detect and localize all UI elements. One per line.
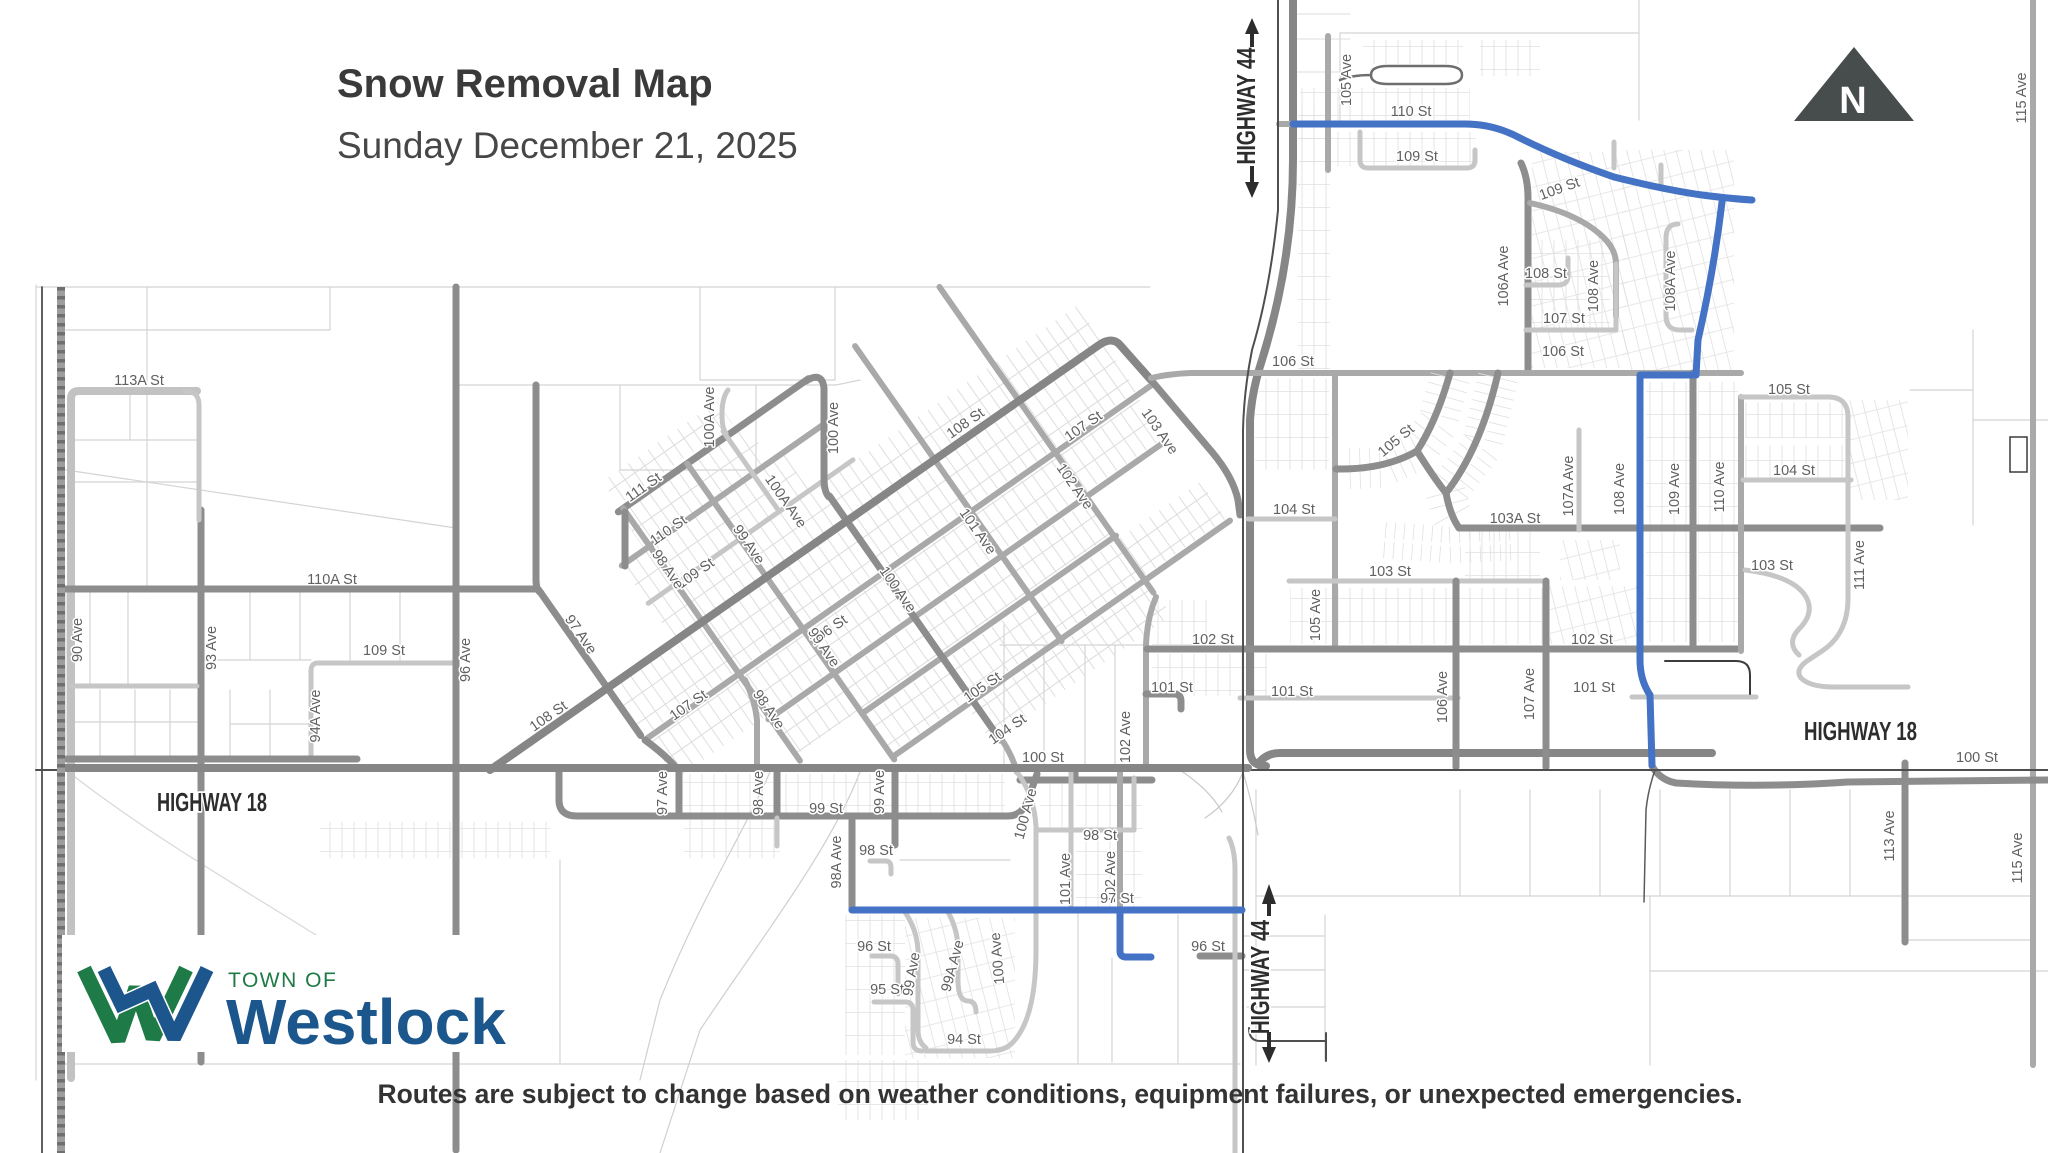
svg-text:97 St: 97 St (1100, 891, 1134, 907)
svg-text:100 St: 100 St (1956, 750, 1998, 766)
svg-text:103 St: 103 St (1369, 564, 1411, 580)
svg-text:HIGHWAY 44: HIGHWAY 44 (1245, 920, 1275, 1034)
svg-text:102 St: 102 St (1192, 632, 1234, 648)
svg-text:98 St: 98 St (859, 843, 893, 859)
svg-text:98 St: 98 St (1083, 828, 1117, 844)
svg-text:104 St: 104 St (1273, 502, 1315, 518)
svg-text:101 St: 101 St (1573, 680, 1615, 696)
svg-text:107 St: 107 St (1543, 311, 1585, 327)
svg-text:100 Ave: 100 Ave (826, 402, 842, 454)
svg-text:109 St: 109 St (363, 643, 405, 659)
svg-text:115 Ave: 115 Ave (2014, 72, 2030, 123)
svg-text:96 St: 96 St (1191, 939, 1225, 955)
svg-text:98A Ave: 98A Ave (829, 836, 845, 889)
svg-text:105 St: 105 St (1768, 382, 1810, 398)
svg-text:108 St: 108 St (1525, 266, 1567, 282)
svg-text:96 St: 96 St (857, 939, 891, 955)
svg-text:101 Ave: 101 Ave (1058, 853, 1074, 905)
svg-text:108 Ave: 108 Ave (1586, 260, 1602, 312)
svg-text:108A Ave: 108A Ave (1663, 250, 1679, 311)
svg-text:95 St: 95 St (870, 982, 904, 998)
svg-text:Sunday December 21, 2025: Sunday December 21, 2025 (337, 125, 798, 166)
svg-text:109 Ave: 109 Ave (1667, 463, 1683, 515)
svg-text:93 Ave: 93 Ave (204, 626, 220, 670)
svg-text:111 Ave: 111 Ave (1852, 540, 1868, 590)
svg-text:94A Ave: 94A Ave (308, 690, 324, 743)
svg-text:Snow Removal Map: Snow Removal Map (337, 62, 713, 106)
svg-text:101 St: 101 St (1151, 680, 1193, 696)
svg-text:109 St: 109 St (1396, 149, 1438, 165)
svg-text:108 Ave: 108 Ave (1612, 463, 1628, 515)
svg-text:113A St: 113A St (114, 373, 164, 389)
svg-text:94 St: 94 St (947, 1032, 981, 1048)
svg-text:106A Ave: 106A Ave (1496, 245, 1512, 306)
svg-text:110 St: 110 St (1391, 104, 1432, 120)
svg-text:Routes are subject to change b: Routes are subject to change based on we… (377, 1079, 1742, 1109)
svg-text:98 Ave: 98 Ave (751, 771, 767, 815)
svg-text:101 St: 101 St (1271, 684, 1313, 700)
svg-text:105 Ave: 105 Ave (1308, 589, 1324, 641)
svg-text:105 Ave: 105 Ave (1339, 54, 1355, 106)
svg-text:HIGHWAY 18: HIGHWAY 18 (1804, 716, 1917, 746)
svg-text:99 Ave: 99 Ave (872, 770, 888, 814)
svg-text:102 St: 102 St (1571, 632, 1613, 648)
svg-text:103 St: 103 St (1751, 558, 1793, 574)
svg-text:99 St: 99 St (809, 801, 843, 817)
svg-text:100A Ave: 100A Ave (702, 386, 718, 447)
svg-text:Westlock: Westlock (226, 986, 506, 1058)
svg-text:HIGHWAY 44: HIGHWAY 44 (1231, 47, 1261, 164)
svg-text:107A Ave: 107A Ave (1561, 455, 1577, 516)
svg-text:113 Ave: 113 Ave (1882, 810, 1898, 861)
svg-text:N: N (1839, 80, 1866, 122)
svg-text:96 Ave: 96 Ave (458, 638, 474, 682)
svg-text:HIGHWAY 18: HIGHWAY 18 (157, 787, 267, 817)
svg-text:115 Ave: 115 Ave (2010, 832, 2026, 883)
svg-text:97 Ave: 97 Ave (655, 771, 671, 815)
svg-text:110 Ave: 110 Ave (1712, 461, 1728, 512)
svg-text:106 Ave: 106 Ave (1435, 671, 1451, 723)
svg-text:107 Ave: 107 Ave (1522, 668, 1538, 720)
svg-text:106 St: 106 St (1542, 344, 1584, 360)
svg-text:103A St: 103A St (1490, 511, 1541, 527)
svg-text:110A St: 110A St (307, 572, 357, 588)
svg-text:106 St: 106 St (1272, 354, 1314, 370)
svg-text:104 St: 104 St (1773, 463, 1815, 479)
svg-text:102 Ave: 102 Ave (1118, 711, 1134, 763)
svg-text:100 St: 100 St (1022, 750, 1064, 766)
svg-text:90 Ave: 90 Ave (70, 618, 86, 662)
